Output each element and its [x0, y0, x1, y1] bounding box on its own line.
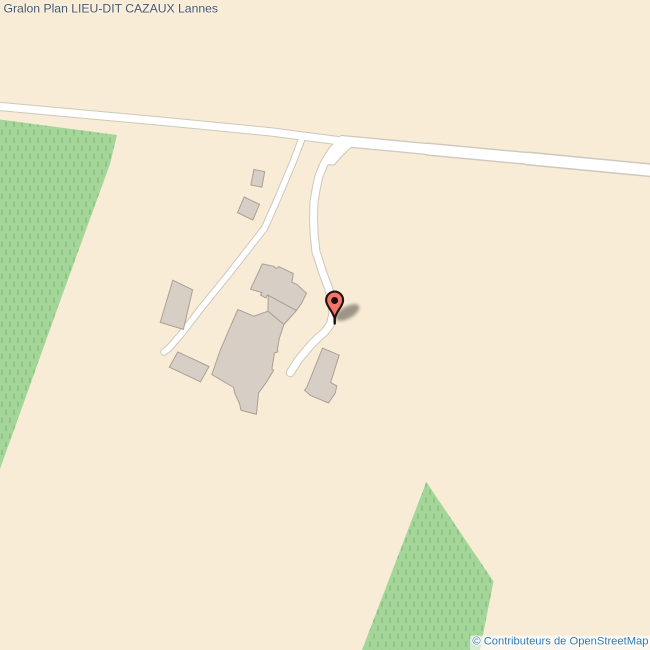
svg-text:© Contributeurs de OpenStreetM: © Contributeurs de OpenStreetMap	[472, 636, 648, 648]
svg-text:Gralon Plan LIEU-DIT CAZAUX La: Gralon Plan LIEU-DIT CAZAUX Lannes	[4, 2, 219, 16]
